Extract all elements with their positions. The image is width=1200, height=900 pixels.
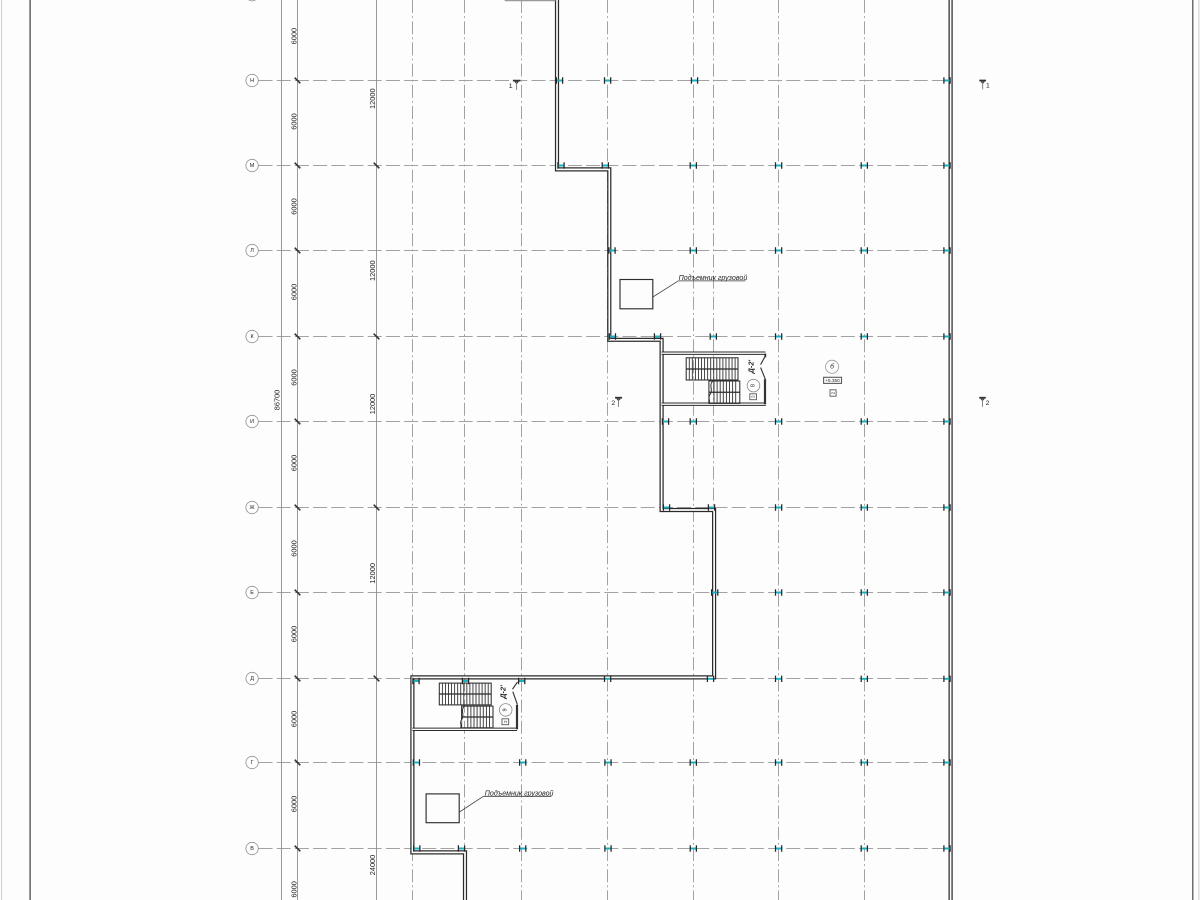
svg-text:6000: 6000 xyxy=(289,540,298,556)
svg-text:+5.350: +5.350 xyxy=(825,378,840,383)
svg-text:Г: Г xyxy=(251,760,254,766)
svg-text:В: В xyxy=(250,846,254,852)
svg-text:Д-2': Д-2' xyxy=(747,360,756,375)
svg-text:24000: 24000 xyxy=(368,855,377,876)
svg-text:6000: 6000 xyxy=(289,369,298,385)
svg-text:12000: 12000 xyxy=(368,394,377,415)
svg-text:Ж: Ж xyxy=(250,505,255,511)
svg-text:М: М xyxy=(250,163,255,169)
svg-text:12000: 12000 xyxy=(368,563,377,584)
svg-text:6000: 6000 xyxy=(289,455,298,471)
svg-text:6000: 6000 xyxy=(289,796,298,812)
svg-text:12000: 12000 xyxy=(368,260,377,281)
svg-text:6000: 6000 xyxy=(289,711,298,727)
svg-text:86700: 86700 xyxy=(273,390,282,411)
svg-text:Л: Л xyxy=(250,248,254,254)
svg-text:8: 8 xyxy=(751,384,757,387)
svg-text:2: 2 xyxy=(611,400,615,407)
svg-text:6000: 6000 xyxy=(289,284,298,300)
svg-text:1: 1 xyxy=(509,83,513,90)
svg-text:6000: 6000 xyxy=(289,28,298,44)
svg-text:Д: Д xyxy=(250,676,254,682)
svg-text:6000: 6000 xyxy=(289,198,298,214)
svg-text:И: И xyxy=(250,419,254,425)
svg-text:6000: 6000 xyxy=(289,626,298,642)
svg-text:Н: Н xyxy=(250,78,254,84)
svg-text:2: 2 xyxy=(986,400,990,407)
svg-text:Е: Е xyxy=(250,590,254,596)
svg-text:1: 1 xyxy=(986,83,990,90)
svg-text:6000: 6000 xyxy=(289,881,298,897)
svg-text:9: 9 xyxy=(503,708,509,711)
svg-text:Д-2': Д-2' xyxy=(499,685,508,700)
svg-text:12000: 12000 xyxy=(368,88,377,109)
svg-text:6000: 6000 xyxy=(289,113,298,129)
